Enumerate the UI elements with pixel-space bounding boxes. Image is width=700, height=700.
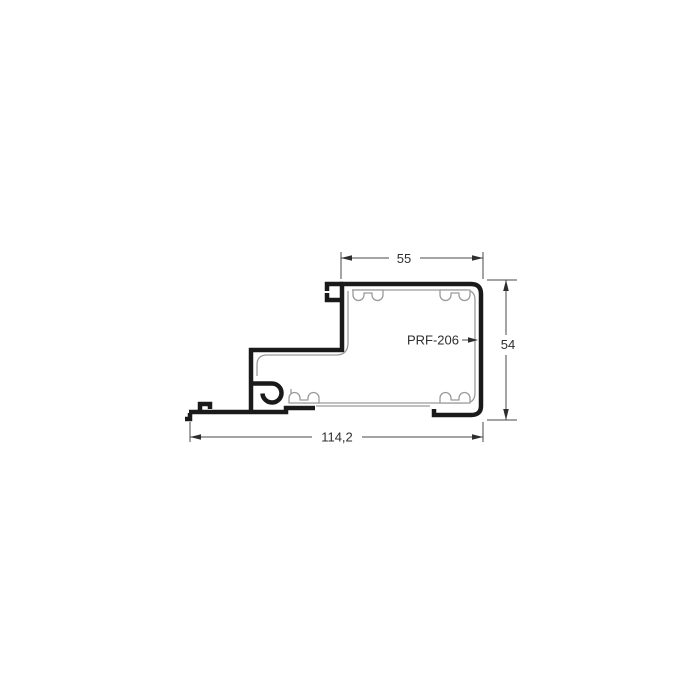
screw-port-top-left <box>353 290 383 301</box>
dimension-right-value: 54 <box>501 337 515 352</box>
profile-screw-channel <box>252 384 281 403</box>
technical-drawing: 55 54 114,2 PRF-206 <box>0 0 700 700</box>
drawing-canvas: 55 54 114,2 PRF-206 <box>0 0 700 700</box>
dimension-bottom-value: 114,2 <box>321 430 353 445</box>
profile-label-group: PRF-206 <box>407 333 478 348</box>
dimension-arrow-right-icon <box>472 434 483 440</box>
leader-arrow-icon <box>468 337 478 343</box>
profile-label: PRF-206 <box>407 333 459 348</box>
dimension-top-extension-lines <box>341 252 483 279</box>
dimension-arrow-down-icon <box>503 409 509 420</box>
dimension-arrow-left-icon <box>190 434 201 440</box>
screw-port-bottom-left <box>289 393 319 403</box>
screw-port-top-right <box>440 290 470 301</box>
dimension-arrow-right-icon <box>472 255 483 261</box>
dimension-bottom: 114,2 <box>190 422 483 445</box>
dimension-top: 55 <box>341 251 483 279</box>
dimension-right: 54 <box>487 280 517 420</box>
dimension-arrow-left-icon <box>341 255 352 261</box>
profile-outline <box>185 284 481 419</box>
screw-port-bottom-right <box>440 393 470 403</box>
inner-step-outline <box>257 291 348 376</box>
profile-arm-tip <box>185 413 190 419</box>
dimension-arrow-up-icon <box>503 280 509 291</box>
dimension-top-value: 55 <box>397 251 411 266</box>
